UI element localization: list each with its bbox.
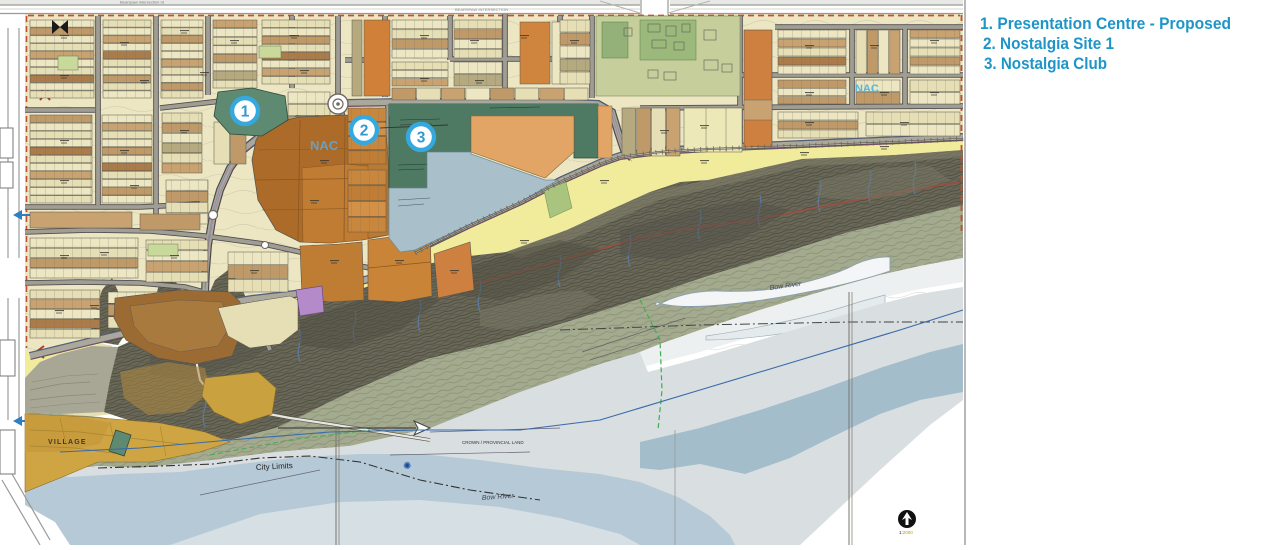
svg-text:Bearspaw intersection rd: Bearspaw intersection rd — [120, 0, 164, 5]
svg-text:1. Presentation Centre - Propo: 1. Presentation Centre - Proposed — [980, 14, 1231, 33]
svg-text:City Limits: City Limits — [256, 461, 293, 472]
svg-text:3: 3 — [417, 130, 426, 147]
svg-text:✺: ✺ — [403, 461, 411, 472]
svg-text:1: 1 — [241, 104, 250, 121]
svg-text:NAC: NAC — [310, 138, 339, 153]
svg-text:2. Nostalgia Site 1: 2. Nostalgia Site 1 — [983, 34, 1114, 53]
svg-text:VILLAGE: VILLAGE — [48, 439, 87, 446]
svg-text:3. Nostalgia Club: 3. Nostalgia Club — [984, 54, 1107, 73]
svg-text:BEARSPAW INTERSECTION: BEARSPAW INTERSECTION — [455, 7, 508, 12]
svg-text:2: 2 — [360, 123, 369, 140]
svg-text:NAC: NAC — [855, 83, 879, 95]
svg-text:CROWN / PROVINCIAL LAND: CROWN / PROVINCIAL LAND — [462, 440, 524, 445]
svg-text:1:2000: 1:2000 — [899, 530, 913, 535]
